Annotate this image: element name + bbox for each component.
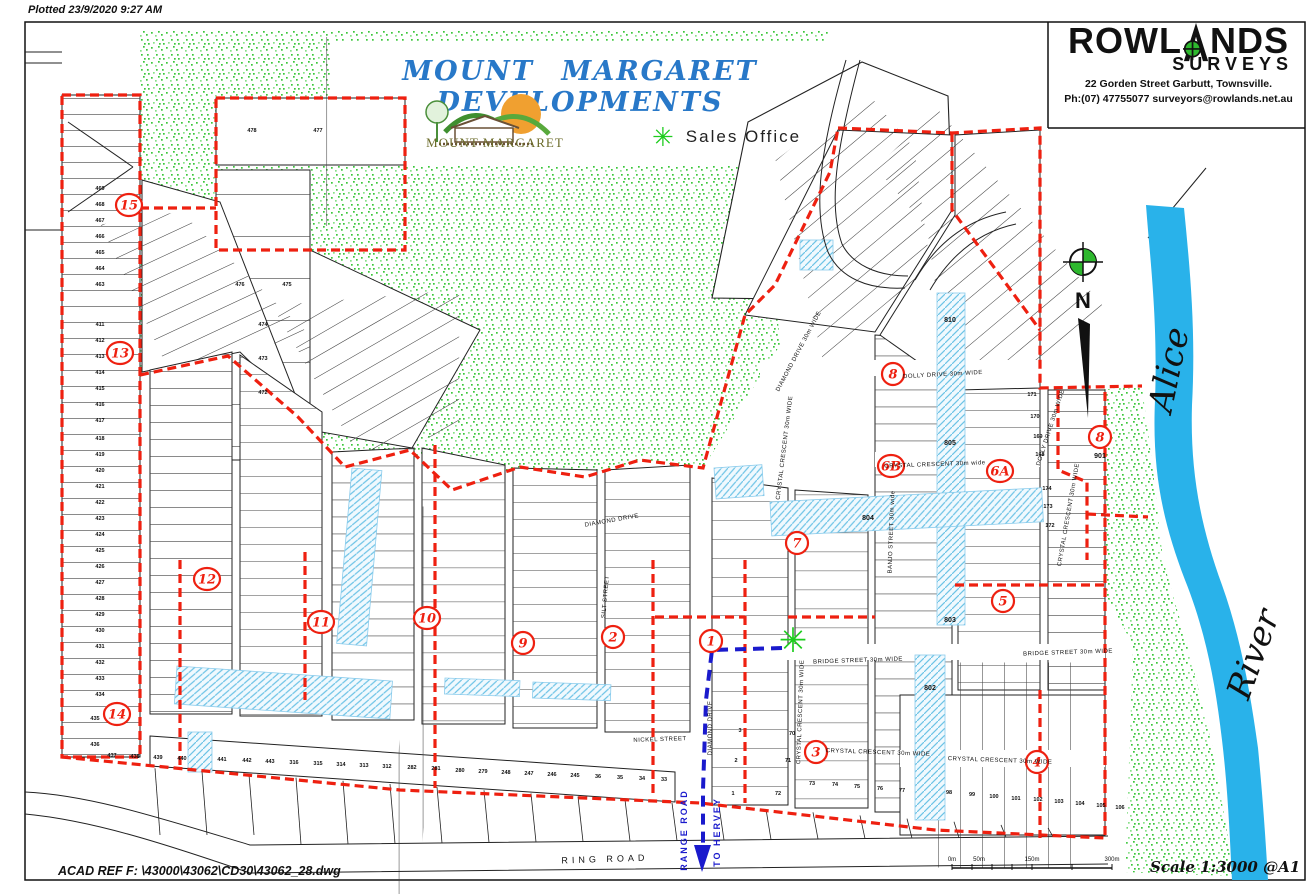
lot-number: 477 <box>313 128 322 134</box>
logo-caption: MOUNT MARGARET <box>405 135 585 151</box>
lot-number: 103 <box>1054 799 1063 805</box>
surveyor-address: 22 Gorden Street Garbutt, Townsville. <box>1052 78 1305 90</box>
drainage-reserve <box>800 240 833 270</box>
stage-marker-8: 8 <box>882 363 904 385</box>
scale-label: Scale 1:3000 @A1 <box>1150 858 1300 876</box>
lot-number: 430 <box>95 628 104 634</box>
stage-marker-13: 13 <box>107 342 133 364</box>
lot-number: 420 <box>95 468 104 474</box>
lot-number: 423 <box>95 516 104 522</box>
stage-marker-10: 10 <box>414 607 440 629</box>
stage-marker-1: 1 <box>700 630 722 652</box>
svg-text:3: 3 <box>811 746 820 761</box>
surveyor-contact: Ph:(07) 47755077 surveyors@rowlands.net.… <box>1052 93 1305 105</box>
lot-number: 101 <box>1011 796 1020 802</box>
lot-number: 281 <box>431 766 440 772</box>
lot-number: 437 <box>107 753 116 759</box>
svg-text:1: 1 <box>706 635 715 650</box>
lot-number: 314 <box>336 762 346 768</box>
lot-number: 478 <box>247 128 256 134</box>
lot-number: 425 <box>95 548 104 554</box>
lot-number: 436 <box>90 742 99 748</box>
svg-text:5: 5 <box>998 595 1007 610</box>
lot-number: 168 <box>1035 452 1044 458</box>
street-label: RANGE ROAD <box>679 789 689 871</box>
sales-office-star-icon: ✳ <box>652 124 674 150</box>
lot-number: 1 <box>731 791 734 797</box>
sales-office-legend: ✳ Sales Office <box>652 124 801 150</box>
stage-marker-9: 9 <box>512 632 534 654</box>
stage-marker-3: 3 <box>805 741 827 763</box>
lot-number: 472 <box>258 390 267 396</box>
lot-number: 417 <box>95 418 104 424</box>
lot-number: 71 <box>785 758 791 764</box>
acad-reference: ACAD REF F: \43000\43062\CD30\43062_28.d… <box>58 864 341 878</box>
lot-number: 99 <box>969 792 975 798</box>
svg-text:14: 14 <box>108 708 126 723</box>
lot-number: 463 <box>95 282 104 288</box>
sales-office-marker-icon: ✳ <box>779 622 808 660</box>
lot-number: 72 <box>775 791 781 797</box>
surveyor-block: ROWLNDS SURVEYS 22 Gorden Street Garbutt… <box>1052 22 1305 105</box>
lot-number: 248 <box>501 770 510 776</box>
drainage-reserve <box>915 655 945 820</box>
street-label: DIAMOND DRIVE <box>708 701 714 756</box>
lot-number: 466 <box>95 234 104 240</box>
lot-block <box>240 355 322 716</box>
drainage-reserve <box>532 682 611 701</box>
svg-text:6A: 6A <box>990 465 1009 480</box>
lot-number: 435 <box>90 716 99 722</box>
lot-number: 98 <box>946 790 952 796</box>
lot-number: 464 <box>95 266 105 272</box>
lot-number: 468 <box>95 202 104 208</box>
lot-number: 416 <box>95 402 104 408</box>
logo-tree-icon <box>426 101 448 123</box>
lot-block <box>605 465 690 732</box>
lot-number: 76 <box>877 786 883 792</box>
street-label: TO HERVEY <box>712 797 722 867</box>
stage-marker-14: 14 <box>104 703 130 725</box>
lot-number: 419 <box>95 452 104 458</box>
lot-number: 105 <box>1096 803 1105 809</box>
stage-marker-5: 5 <box>992 590 1014 612</box>
lot-number: 102 <box>1033 797 1042 803</box>
stage-marker-6A: 6A <box>987 460 1013 482</box>
svg-text:7: 7 <box>792 537 801 552</box>
lot-number: 173 <box>1043 504 1052 510</box>
stage-marker-11: 11 <box>308 611 334 633</box>
lot-block <box>150 352 232 714</box>
lot-number: 427 <box>95 580 104 586</box>
lot-number: 75 <box>854 784 860 790</box>
drainage-reserve <box>188 732 212 772</box>
drainage-reserve <box>937 293 965 625</box>
lot-number: 443 <box>265 759 274 765</box>
svg-text:13: 13 <box>111 347 129 362</box>
lot-number: 418 <box>95 436 104 442</box>
lot-number: 434 <box>95 692 105 698</box>
lot-number: 104 <box>1075 801 1085 807</box>
scale-tick-label: 150m <box>1024 857 1039 863</box>
compass-north-label: N <box>1075 288 1091 313</box>
lot-number: 415 <box>95 386 104 392</box>
stage-marker-15: 15 <box>116 194 142 216</box>
lot-number: 34 <box>639 776 646 782</box>
scale-tick-label: 50m <box>973 857 985 863</box>
surveyor-name-left: ROWL <box>1068 24 1182 58</box>
lot-number: 77 <box>899 788 905 794</box>
lot-number: 474 <box>258 322 268 328</box>
lot-number: 426 <box>95 564 104 570</box>
lot-number: 441 <box>217 757 226 763</box>
lot-number: 246 <box>547 772 556 778</box>
lot-number: 73 <box>809 781 815 787</box>
lot-number: 100 <box>989 794 998 800</box>
scale-tick-label: 300m <box>1104 857 1119 863</box>
lot-number: 475 <box>282 282 291 288</box>
svg-text:8: 8 <box>888 368 897 383</box>
lot-number: 473 <box>258 356 267 362</box>
lot-number: 431 <box>95 644 104 650</box>
svg-text:12: 12 <box>198 573 216 588</box>
lot-number: 282 <box>407 765 416 771</box>
lot-number: 428 <box>95 596 104 602</box>
lot-number: 414 <box>95 370 105 376</box>
lot-number: 35 <box>617 775 623 781</box>
stage-marker-12: 12 <box>194 568 220 590</box>
survey-plan-sheet: ✳N0m50m150m300m151312111410921376B6A5884… <box>0 0 1315 894</box>
lot-number: 169 <box>1033 434 1042 440</box>
scale-tick-label: 0m <box>948 857 956 863</box>
lot-number: 412 <box>95 338 104 344</box>
lot-number: 74 <box>832 782 839 788</box>
plotted-timestamp: Plotted 23/9/2020 9:27 AM <box>28 4 162 16</box>
lot-number: 413 <box>95 354 104 360</box>
svg-text:2: 2 <box>607 631 617 646</box>
svg-text:11: 11 <box>312 616 330 631</box>
lot-number: 106 <box>1115 805 1124 811</box>
lot-number: 316 <box>289 760 298 766</box>
surveyor-name: ROWLNDS <box>1052 22 1305 58</box>
lot-number: 171 <box>1027 392 1036 398</box>
lot-number: 469 <box>95 186 104 192</box>
lot-number: 172 <box>1045 523 1054 529</box>
lot-number: 442 <box>242 758 251 764</box>
lot-number: 439 <box>153 755 162 761</box>
reserve-lot-label: 810 <box>944 317 956 324</box>
surveyor-name-right: NDS <box>1210 24 1289 58</box>
lot-number: 170 <box>1030 414 1039 420</box>
lot-number: 33 <box>661 777 667 783</box>
reserve-lot-label: 804 <box>862 515 874 522</box>
lot-number: 421 <box>95 484 104 490</box>
svg-text:9: 9 <box>518 637 527 652</box>
lot-number: 2 <box>734 758 737 764</box>
stage-marker-2: 2 <box>602 626 624 648</box>
svg-text:15: 15 <box>120 199 138 214</box>
svg-text:10: 10 <box>418 612 436 627</box>
lot-number: 313 <box>359 763 368 769</box>
reserve-lot-label: 805 <box>944 440 956 447</box>
stage-marker-8: 8 <box>1089 426 1111 448</box>
lot-number: 432 <box>95 660 104 666</box>
page-title: MOUNT MARGARET DEVELOPMENTS <box>340 56 820 118</box>
reserve-lot-label: 901 <box>1094 453 1106 460</box>
lot-number: 422 <box>95 500 104 506</box>
lot-number: 245 <box>570 773 579 779</box>
lot-number: 476 <box>235 282 244 288</box>
reserve-lot-label: 802 <box>924 685 936 692</box>
drainage-reserve <box>714 465 764 499</box>
lot-number: 312 <box>382 764 391 770</box>
sales-office-label: Sales Office <box>686 127 801 147</box>
lot-number: 280 <box>455 768 464 774</box>
lot-number: 438 <box>130 754 139 760</box>
lot-number: 440 <box>177 756 186 762</box>
lot-number: 411 <box>96 322 105 328</box>
lot-number: 36 <box>595 774 601 780</box>
lot-number: 429 <box>95 612 104 618</box>
lot-number: 467 <box>95 218 104 224</box>
lot-number: 424 <box>95 532 105 538</box>
lot-number: 279 <box>478 769 487 775</box>
lot-number: 465 <box>95 250 104 256</box>
svg-text:8: 8 <box>1095 431 1104 446</box>
stage-marker-7: 7 <box>786 532 808 554</box>
lot-number: 315 <box>313 761 322 767</box>
drainage-reserve <box>444 678 520 697</box>
lot-number: 174 <box>1042 486 1052 492</box>
reserve-lot-label: 803 <box>944 617 956 624</box>
lot-number: 3 <box>738 728 741 734</box>
lot-number: 70 <box>789 731 795 737</box>
lot-number: 247 <box>524 771 533 777</box>
lot-number: 433 <box>95 676 104 682</box>
